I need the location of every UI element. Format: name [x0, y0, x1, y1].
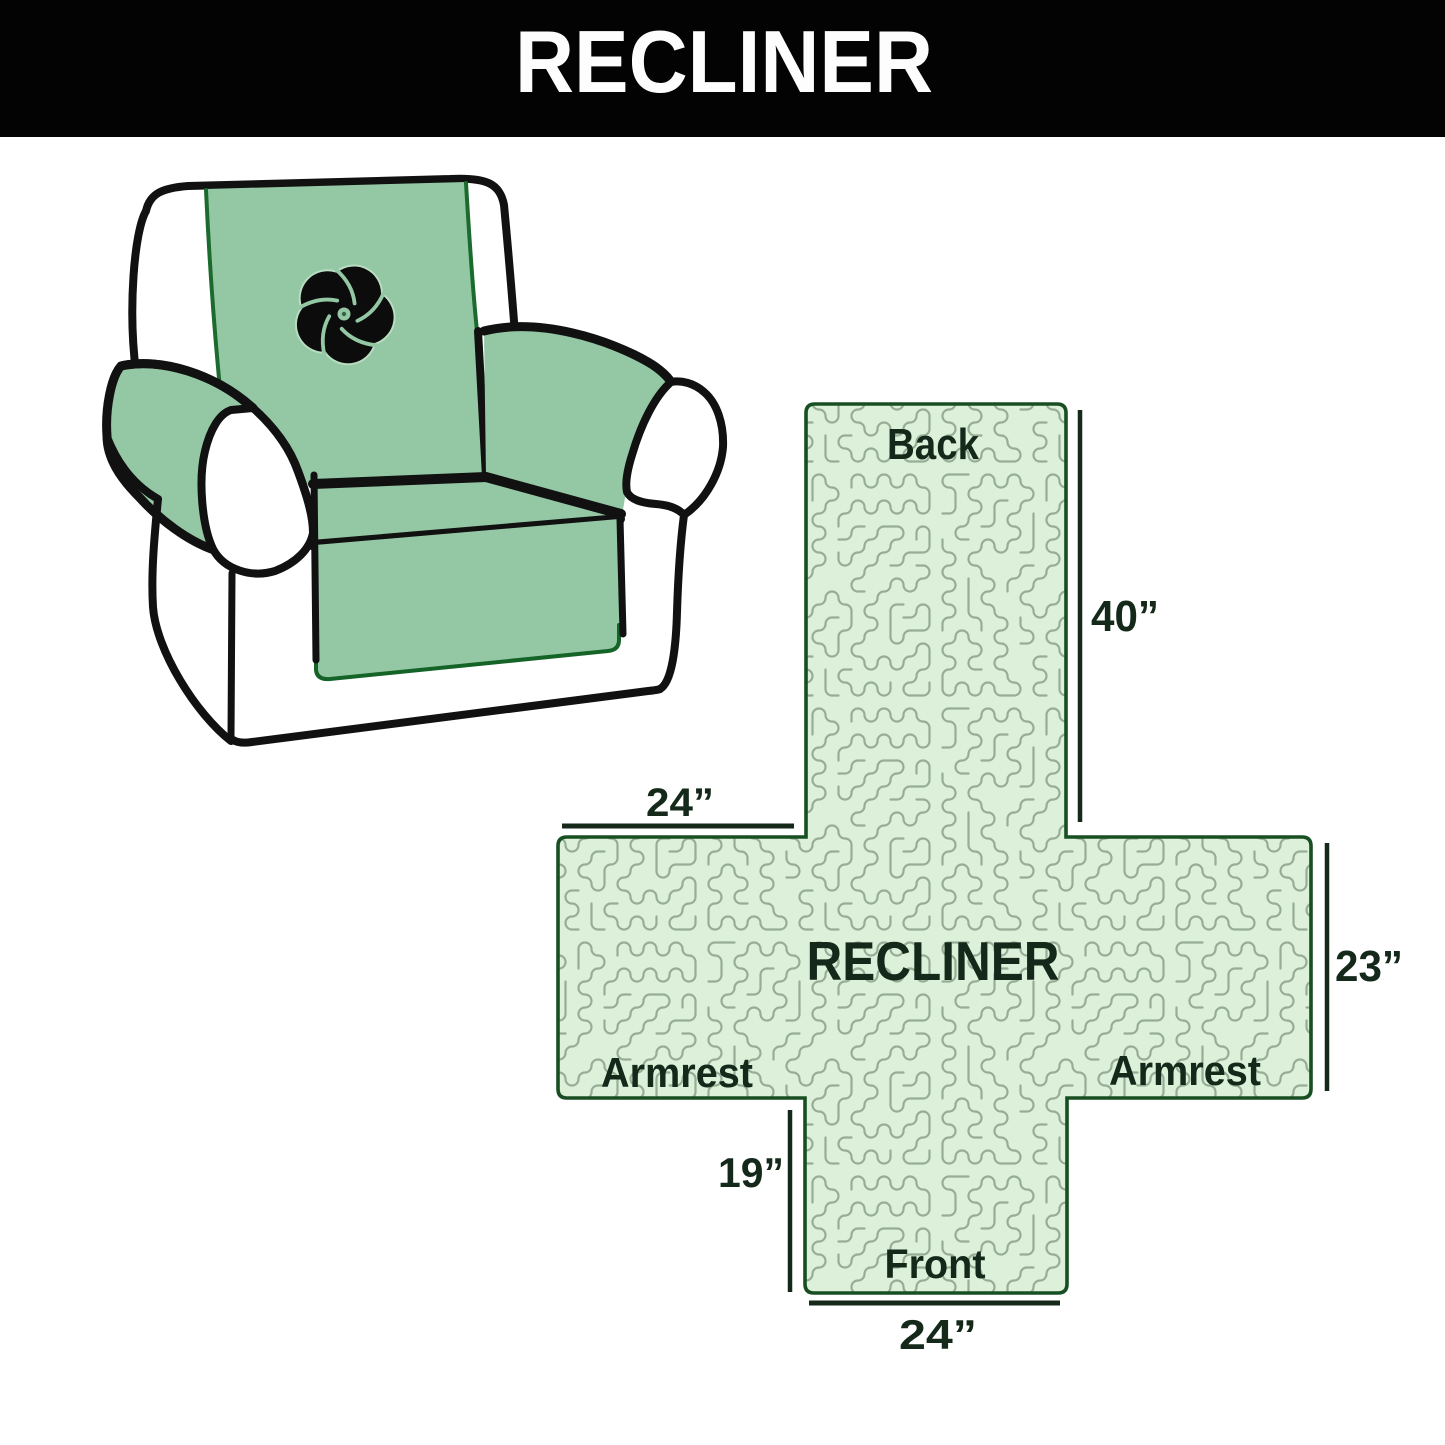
svg-text:Armrest: Armrest	[601, 1049, 753, 1096]
svg-text:24”: 24”	[646, 781, 714, 825]
svg-text:24”: 24”	[899, 1311, 977, 1358]
svg-text:Back: Back	[887, 420, 979, 469]
svg-text:RECLINER: RECLINER	[515, 12, 933, 111]
svg-text:Armrest: Armrest	[1109, 1047, 1261, 1094]
svg-text:RECLINER: RECLINER	[807, 930, 1060, 992]
svg-text:Front: Front	[885, 1241, 986, 1287]
svg-text:23”: 23”	[1335, 942, 1403, 991]
svg-text:19”: 19”	[718, 1149, 784, 1196]
svg-text:40”: 40”	[1091, 592, 1159, 641]
